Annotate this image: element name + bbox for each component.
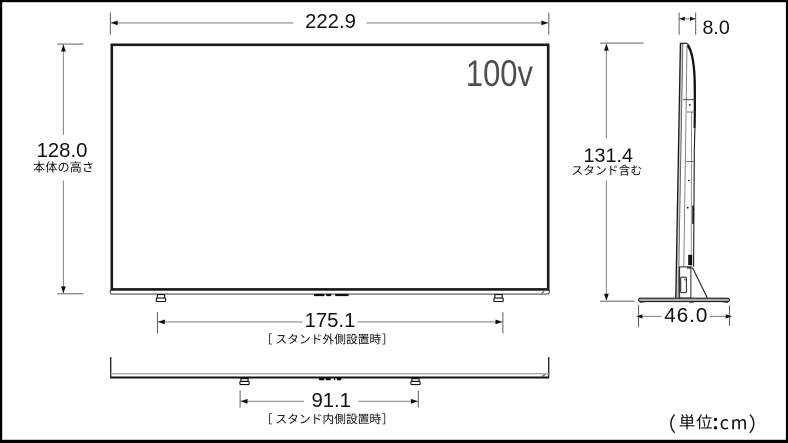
svg-text:222.9: 222.9 [305, 11, 356, 33]
svg-text:128.0: 128.0 [37, 140, 88, 162]
svg-text:91.1: 91.1 [311, 390, 350, 412]
svg-text:175.1: 175.1 [305, 310, 356, 332]
svg-text:46.0: 46.0 [664, 304, 707, 327]
svg-text:8.0: 8.0 [703, 17, 730, 39]
svg-text:100v: 100v [466, 53, 533, 94]
svg-text:131.4: 131.4 [583, 145, 633, 167]
